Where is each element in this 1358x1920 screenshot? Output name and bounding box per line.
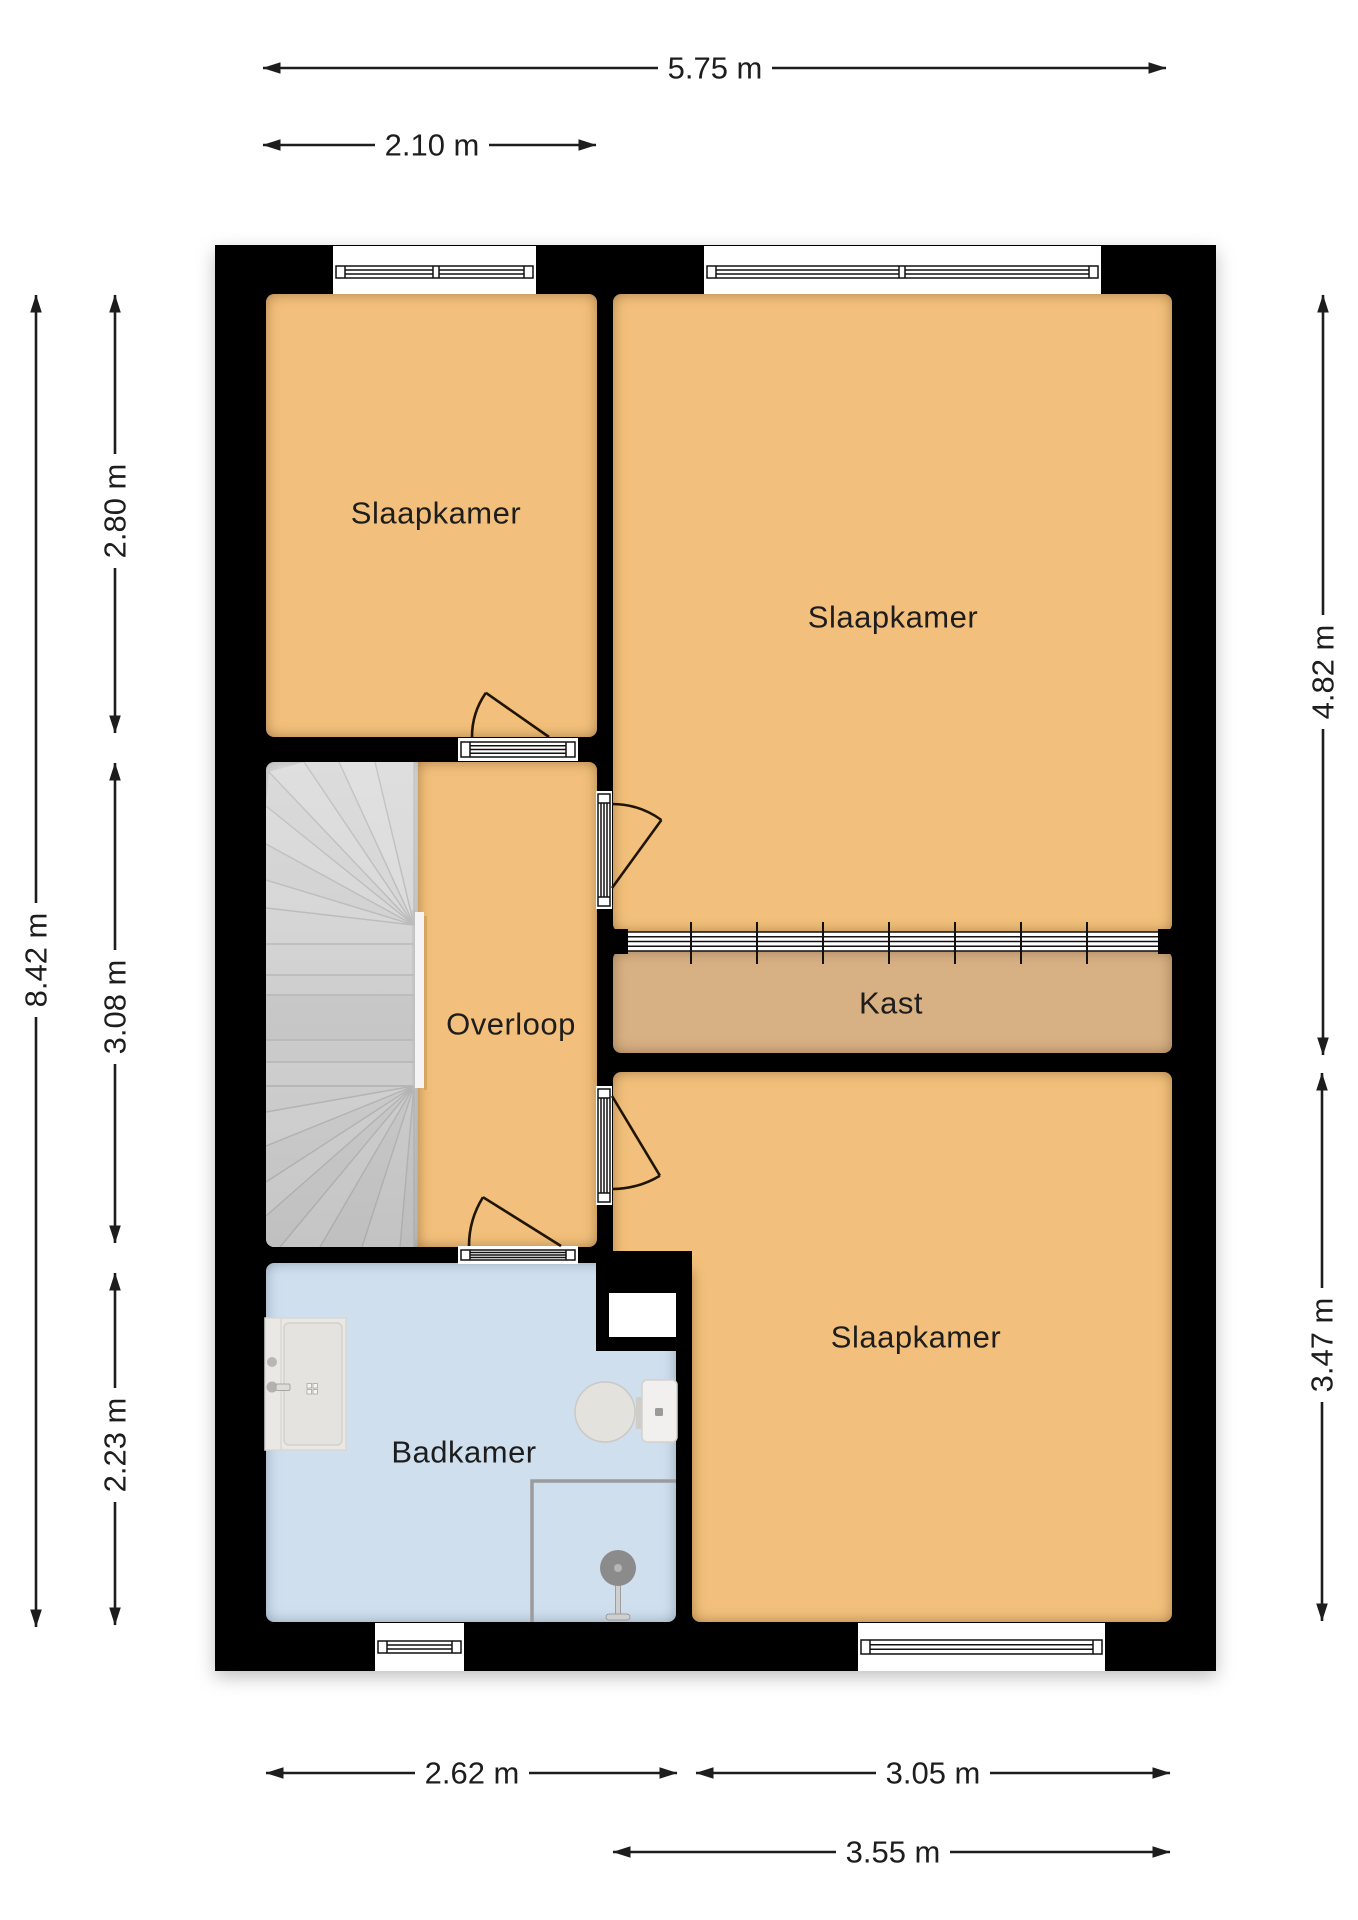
svg-text:3.05 m: 3.05 m (886, 1756, 981, 1791)
svg-text:3.08 m: 3.08 m (98, 960, 133, 1055)
svg-text:4.82 m: 4.82 m (1306, 625, 1341, 720)
svg-text:2.10 m: 2.10 m (385, 128, 480, 163)
svg-text:Slaapkamer: Slaapkamer (831, 1320, 1001, 1355)
svg-text:Overloop: Overloop (446, 1007, 576, 1042)
svg-text:3.55 m: 3.55 m (846, 1835, 941, 1870)
svg-text:2.62 m: 2.62 m (425, 1756, 520, 1791)
svg-text:5.75 m: 5.75 m (668, 51, 763, 86)
svg-text:Badkamer: Badkamer (391, 1435, 536, 1470)
svg-text:2.23 m: 2.23 m (98, 1398, 133, 1493)
svg-text:Slaapkamer: Slaapkamer (808, 600, 978, 635)
svg-text:3.47 m: 3.47 m (1305, 1298, 1340, 1393)
svg-text:8.42 m: 8.42 m (19, 913, 54, 1008)
svg-text:2.80 m: 2.80 m (98, 464, 133, 559)
svg-text:Slaapkamer: Slaapkamer (351, 496, 521, 531)
svg-text:Kast: Kast (859, 986, 923, 1021)
